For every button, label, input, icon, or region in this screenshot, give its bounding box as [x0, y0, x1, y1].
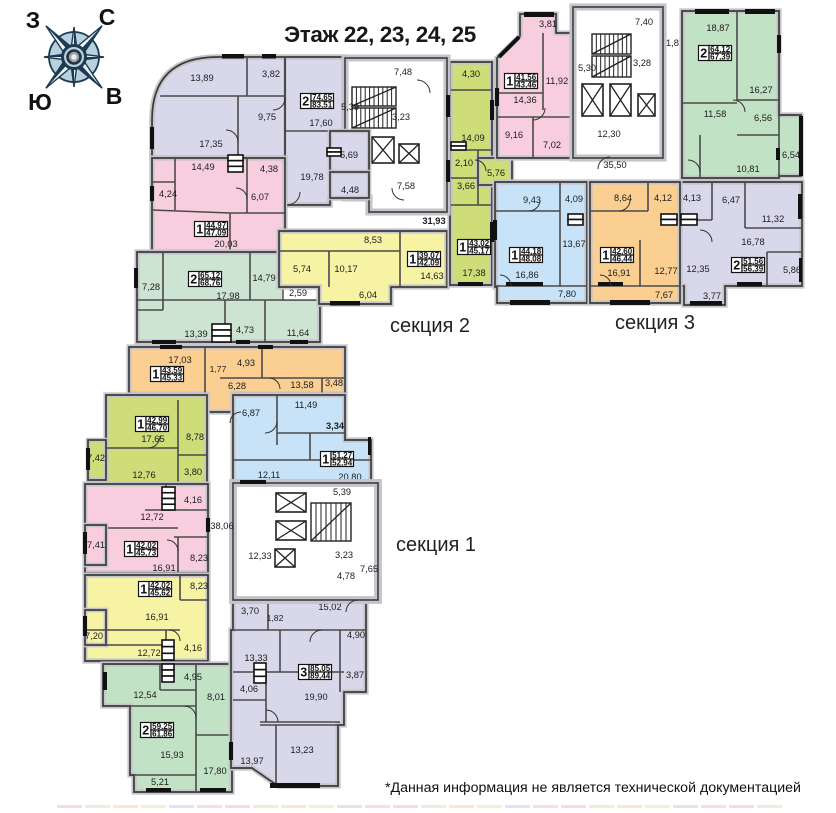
svg-text:6,28: 6,28: [228, 381, 246, 391]
svg-text:11,92: 11,92: [546, 76, 569, 86]
svg-text:11,64: 11,64: [287, 328, 310, 338]
svg-text:З: З: [26, 7, 40, 33]
svg-text:83,51: 83,51: [312, 101, 333, 110]
svg-text:16,91: 16,91: [607, 268, 630, 278]
svg-text:43,46: 43,46: [516, 81, 537, 90]
svg-text:2: 2: [142, 724, 149, 738]
svg-text:5,39: 5,39: [333, 487, 351, 497]
svg-text:42,09: 42,09: [419, 259, 440, 268]
svg-text:1,82: 1,82: [267, 613, 284, 623]
svg-text:45,73: 45,73: [136, 549, 157, 558]
svg-text:3,34: 3,34: [326, 421, 345, 431]
svg-text:4,09: 4,09: [565, 194, 583, 204]
svg-text:3: 3: [300, 666, 307, 680]
svg-text:8,01: 8,01: [207, 692, 225, 702]
svg-text:1: 1: [602, 249, 609, 263]
svg-text:12,72: 12,72: [140, 512, 163, 522]
svg-text:46,70: 46,70: [147, 424, 168, 433]
svg-text:4,12: 4,12: [654, 193, 672, 203]
svg-text:секция 2: секция 2: [390, 315, 470, 337]
svg-text:7,65: 7,65: [360, 564, 378, 574]
svg-text:12,30: 12,30: [597, 129, 620, 139]
svg-text:67,39: 67,39: [710, 53, 731, 62]
svg-text:52,94: 52,94: [332, 459, 353, 468]
svg-text:5,69: 5,69: [340, 150, 358, 160]
svg-text:45,62: 45,62: [150, 589, 171, 598]
svg-text:17,80: 17,80: [203, 766, 226, 776]
svg-text:12,33: 12,33: [248, 551, 271, 561]
svg-text:19,78: 19,78: [300, 172, 323, 182]
svg-text:31,93: 31,93: [422, 216, 445, 226]
svg-text:7,02: 7,02: [543, 140, 561, 150]
svg-text:20,03: 20,03: [214, 239, 237, 249]
svg-text:13,58: 13,58: [290, 380, 313, 390]
svg-text:12,76: 12,76: [132, 470, 155, 480]
svg-text:14,49: 14,49: [191, 162, 214, 172]
svg-text:15,93: 15,93: [160, 750, 183, 760]
svg-text:1: 1: [140, 583, 147, 597]
svg-text:2,10: 2,10: [455, 158, 473, 168]
svg-text:4,24: 4,24: [159, 189, 177, 199]
svg-text:1: 1: [126, 543, 133, 557]
svg-text:46,44: 46,44: [612, 255, 633, 264]
svg-text:6,47: 6,47: [722, 195, 740, 205]
svg-text:14,79: 14,79: [252, 273, 275, 283]
svg-text:17,60: 17,60: [309, 118, 332, 128]
svg-text:3,28: 3,28: [633, 58, 651, 68]
svg-text:7,67: 7,67: [655, 290, 673, 300]
svg-text:13,39: 13,39: [184, 329, 207, 339]
svg-text:4,90: 4,90: [347, 630, 365, 640]
svg-text:12,35: 12,35: [686, 264, 709, 274]
svg-text:секция 3: секция 3: [615, 312, 695, 334]
svg-text:4,16: 4,16: [184, 643, 202, 653]
svg-text:1: 1: [196, 223, 203, 237]
svg-text:5,74: 5,74: [293, 264, 311, 274]
svg-text:9,16: 9,16: [505, 130, 523, 140]
svg-text:5,39: 5,39: [341, 102, 359, 112]
svg-text:2: 2: [302, 95, 309, 109]
svg-text:12,11: 12,11: [258, 470, 281, 480]
svg-text:16,91: 16,91: [152, 563, 175, 573]
svg-text:8,23: 8,23: [190, 581, 208, 591]
svg-text:8,23: 8,23: [190, 553, 208, 563]
svg-text:1: 1: [506, 75, 513, 89]
svg-text:1: 1: [152, 368, 159, 382]
svg-text:16,27: 16,27: [749, 85, 772, 95]
svg-text:2: 2: [733, 259, 740, 273]
svg-text:4,73: 4,73: [236, 325, 254, 335]
svg-text:6,56: 6,56: [754, 113, 772, 123]
svg-text:11,58: 11,58: [704, 109, 727, 119]
svg-text:14,36: 14,36: [513, 95, 536, 105]
svg-text:3,80: 3,80: [184, 467, 202, 477]
svg-text:1: 1: [322, 453, 329, 467]
svg-text:4,16: 4,16: [184, 495, 202, 505]
svg-text:17,38: 17,38: [462, 268, 485, 278]
svg-text:3,81: 3,81: [539, 19, 557, 29]
svg-text:48,08: 48,08: [521, 255, 542, 264]
svg-text:6,54: 6,54: [782, 150, 800, 160]
svg-text:3,23: 3,23: [335, 550, 353, 560]
svg-text:45,33: 45,33: [162, 374, 183, 383]
svg-text:18,87: 18,87: [706, 23, 729, 33]
svg-text:5,21: 5,21: [151, 777, 169, 787]
svg-text:3,66: 3,66: [457, 181, 475, 191]
svg-text:9,43: 9,43: [523, 195, 541, 205]
svg-text:3,77: 3,77: [703, 291, 721, 301]
svg-text:11,32: 11,32: [762, 214, 785, 224]
svg-text:4,93: 4,93: [237, 358, 255, 368]
svg-text:4,06: 4,06: [240, 684, 258, 694]
svg-text:2: 2: [700, 47, 707, 61]
svg-text:45,17: 45,17: [469, 247, 490, 256]
svg-text:3,70: 3,70: [241, 606, 259, 616]
svg-text:12,54: 12,54: [133, 690, 156, 700]
svg-text:16,78: 16,78: [741, 237, 764, 247]
svg-text:1: 1: [137, 418, 144, 432]
svg-text:17,98: 17,98: [216, 291, 239, 301]
svg-text:13,67: 13,67: [562, 239, 585, 249]
svg-text:7,40: 7,40: [635, 17, 653, 27]
svg-text:8,53: 8,53: [364, 235, 382, 245]
svg-text:8,64: 8,64: [614, 193, 632, 203]
svg-text:1: 1: [511, 249, 518, 263]
svg-text:16,86: 16,86: [515, 270, 538, 280]
svg-text:17,03: 17,03: [168, 355, 191, 365]
svg-text:5,30: 5,30: [578, 63, 596, 73]
svg-text:4,30: 4,30: [462, 69, 480, 79]
svg-text:В: В: [106, 83, 123, 109]
svg-text:13,89: 13,89: [190, 73, 213, 83]
svg-text:секция 1: секция 1: [396, 534, 476, 556]
svg-text:6,07: 6,07: [251, 192, 269, 202]
svg-text:Этаж 22, 23, 24, 25: Этаж 22, 23, 24, 25: [284, 22, 476, 47]
svg-text:19,90: 19,90: [304, 692, 327, 702]
svg-text:6,04: 6,04: [359, 290, 377, 300]
svg-text:10,17: 10,17: [334, 264, 357, 274]
svg-text:4,13: 4,13: [683, 193, 701, 203]
svg-text:1,77: 1,77: [210, 364, 227, 374]
svg-text:61,86: 61,86: [152, 730, 173, 739]
svg-text:9,75: 9,75: [258, 112, 276, 122]
svg-text:47,09: 47,09: [206, 229, 227, 238]
svg-text:С: С: [99, 4, 116, 30]
svg-text:2: 2: [190, 273, 197, 287]
svg-text:16,91: 16,91: [145, 612, 168, 622]
svg-text:Ю: Ю: [28, 89, 52, 115]
svg-text:7,80: 7,80: [558, 289, 576, 299]
svg-text:5,86: 5,86: [783, 265, 801, 275]
svg-text:7,20: 7,20: [85, 631, 103, 641]
svg-text:6,87: 6,87: [242, 408, 260, 418]
svg-text:7,58: 7,58: [397, 181, 415, 191]
svg-text:1: 1: [409, 253, 416, 267]
svg-text:35,50: 35,50: [603, 160, 626, 170]
svg-text:3,82: 3,82: [262, 69, 280, 79]
svg-text:*Данная информация не является: *Данная информация не является техническ…: [385, 780, 801, 796]
svg-text:12,77: 12,77: [654, 266, 677, 276]
svg-text:5,76: 5,76: [487, 168, 505, 178]
svg-text:38,06: 38,06: [210, 521, 233, 531]
svg-text:7,48: 7,48: [394, 67, 412, 77]
svg-text:3,48: 3,48: [325, 378, 343, 388]
svg-text:13,23: 13,23: [290, 745, 313, 755]
svg-text:4,48: 4,48: [341, 185, 359, 195]
svg-text:12,72: 12,72: [137, 648, 160, 658]
svg-text:56,39: 56,39: [743, 265, 764, 274]
svg-text:3,87: 3,87: [346, 670, 364, 680]
svg-text:1: 1: [459, 241, 466, 255]
svg-text:4,38: 4,38: [260, 164, 278, 174]
svg-text:13,33: 13,33: [244, 653, 267, 663]
svg-text:10,81: 10,81: [736, 164, 759, 174]
svg-text:13,97: 13,97: [240, 756, 263, 766]
svg-text:17,65: 17,65: [141, 434, 164, 444]
svg-text:89,44: 89,44: [310, 672, 331, 681]
svg-text:11,49: 11,49: [295, 400, 318, 410]
svg-text:7,41: 7,41: [87, 540, 105, 550]
svg-text:4,78: 4,78: [337, 571, 355, 581]
svg-text:17,35: 17,35: [199, 139, 222, 149]
svg-text:14,63: 14,63: [420, 271, 443, 281]
svg-text:7,28: 7,28: [142, 282, 160, 292]
svg-text:68,76: 68,76: [200, 279, 221, 288]
svg-text:8,78: 8,78: [186, 432, 204, 442]
svg-text:3,23: 3,23: [392, 112, 410, 122]
svg-text:4,95: 4,95: [184, 672, 202, 682]
